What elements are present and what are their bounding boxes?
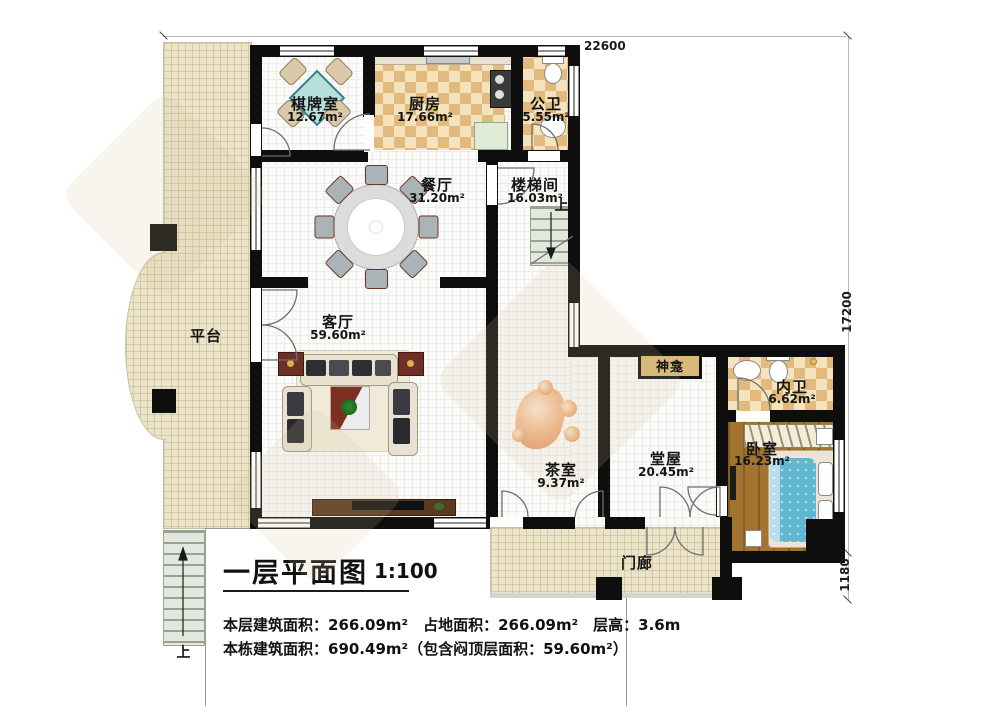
room-area-bedroom: 16.23m² — [712, 454, 812, 468]
room-area-public-bath: 5.55m² — [516, 110, 576, 124]
stairwell-up-label: 上 — [550, 195, 574, 215]
room-area-tea: 9.37m² — [516, 476, 606, 490]
dimension-top-label: 22600 — [584, 39, 626, 53]
door-arc — [660, 487, 690, 517]
door-arc — [675, 527, 703, 555]
floor-plan-canvas: 22600 17200 1180 — [0, 0, 1000, 706]
door-arc — [262, 290, 297, 325]
door-arc — [502, 491, 528, 517]
door-arc — [688, 487, 716, 515]
room-area-hall: 20.45m² — [621, 465, 711, 479]
door-arc — [262, 325, 297, 360]
room-area-kitchen: 17.66m² — [380, 110, 470, 124]
dimension-right-label: 17200 — [840, 282, 854, 342]
room-area-dining: 31.20m² — [392, 191, 482, 205]
room-area-living: 59.60m² — [293, 328, 383, 342]
room-label-terrace: 平台 — [166, 325, 246, 346]
door-arc — [262, 128, 290, 156]
dimension-bottom-right-label: 1180 — [838, 545, 852, 605]
exterior-up-label: 上 — [172, 642, 196, 662]
room-label-porch: 门廊 — [592, 552, 682, 573]
door-arc — [532, 124, 558, 150]
door-arc — [647, 527, 675, 555]
room-label-shrine: 神龛 — [638, 356, 702, 375]
room-area-private-bath: 6.62m² — [747, 392, 837, 406]
exterior-stair-arrowhead — [179, 548, 187, 560]
room-area-gameroom: 12.67m² — [265, 110, 365, 124]
door-arc — [575, 491, 603, 517]
